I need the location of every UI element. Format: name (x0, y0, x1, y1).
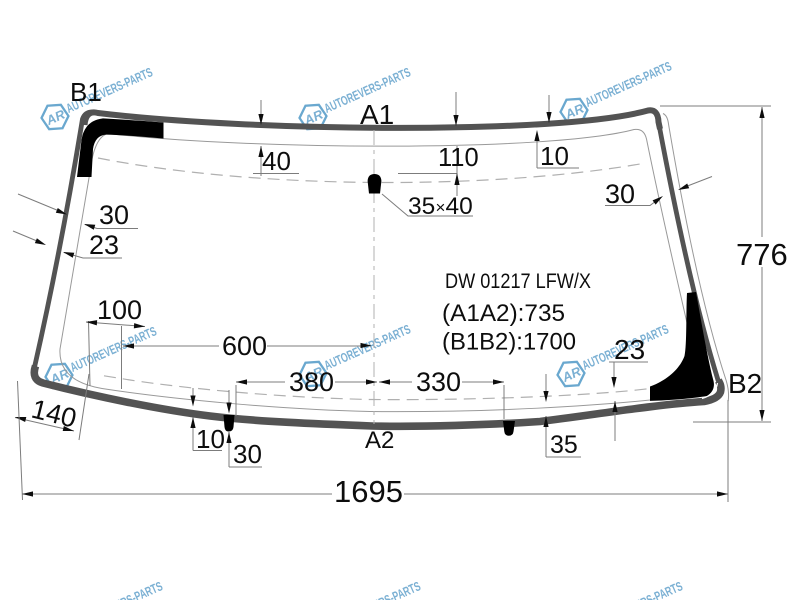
svg-text:×: × (436, 198, 446, 217)
svg-text:1695: 1695 (334, 474, 403, 509)
svg-text:140: 140 (29, 394, 80, 434)
svg-text:10: 10 (540, 141, 569, 171)
svg-text:AUTOREVERS-PARTS: AUTOREVERS-PARTS (583, 58, 674, 110)
svg-text:40: 40 (446, 193, 473, 220)
svg-text:330: 330 (416, 367, 461, 397)
svg-text:(B1B2):1700: (B1B2):1700 (442, 329, 576, 356)
svg-text:A1: A1 (360, 99, 394, 130)
svg-text:A2: A2 (365, 427, 394, 454)
svg-text:23: 23 (614, 334, 645, 365)
svg-text:110: 110 (438, 144, 479, 172)
svg-text:30: 30 (233, 439, 262, 469)
svg-text:10: 10 (196, 424, 225, 454)
svg-text:35: 35 (550, 431, 578, 459)
svg-text:23: 23 (89, 230, 119, 260)
svg-text:DW 01217 LFW/X: DW 01217 LFW/X (445, 270, 591, 293)
svg-text:600: 600 (222, 331, 267, 361)
svg-text:AUTOREVERS-PARTS: AUTOREVERS-PARTS (332, 578, 423, 600)
svg-text:AUTOREVERS-PARTS: AUTOREVERS-PARTS (322, 321, 413, 373)
svg-text:35: 35 (408, 193, 435, 220)
svg-text:380: 380 (289, 367, 334, 397)
svg-text:(A1A2):735: (A1A2):735 (442, 300, 565, 327)
svg-text:B1: B1 (70, 77, 102, 107)
svg-text:AUTOREVERS-PARTS: AUTOREVERS-PARTS (74, 578, 165, 600)
svg-text:776: 776 (736, 237, 788, 272)
svg-text:B2: B2 (728, 368, 762, 399)
svg-text:30: 30 (99, 200, 129, 230)
svg-text:AUTOREVERS-PARTS: AUTOREVERS-PARTS (594, 578, 685, 600)
svg-text:40: 40 (262, 146, 291, 176)
svg-text:100: 100 (97, 295, 142, 325)
svg-text:AUTOREVERS-PARTS: AUTOREVERS-PARTS (68, 323, 159, 375)
svg-text:30: 30 (605, 179, 635, 209)
